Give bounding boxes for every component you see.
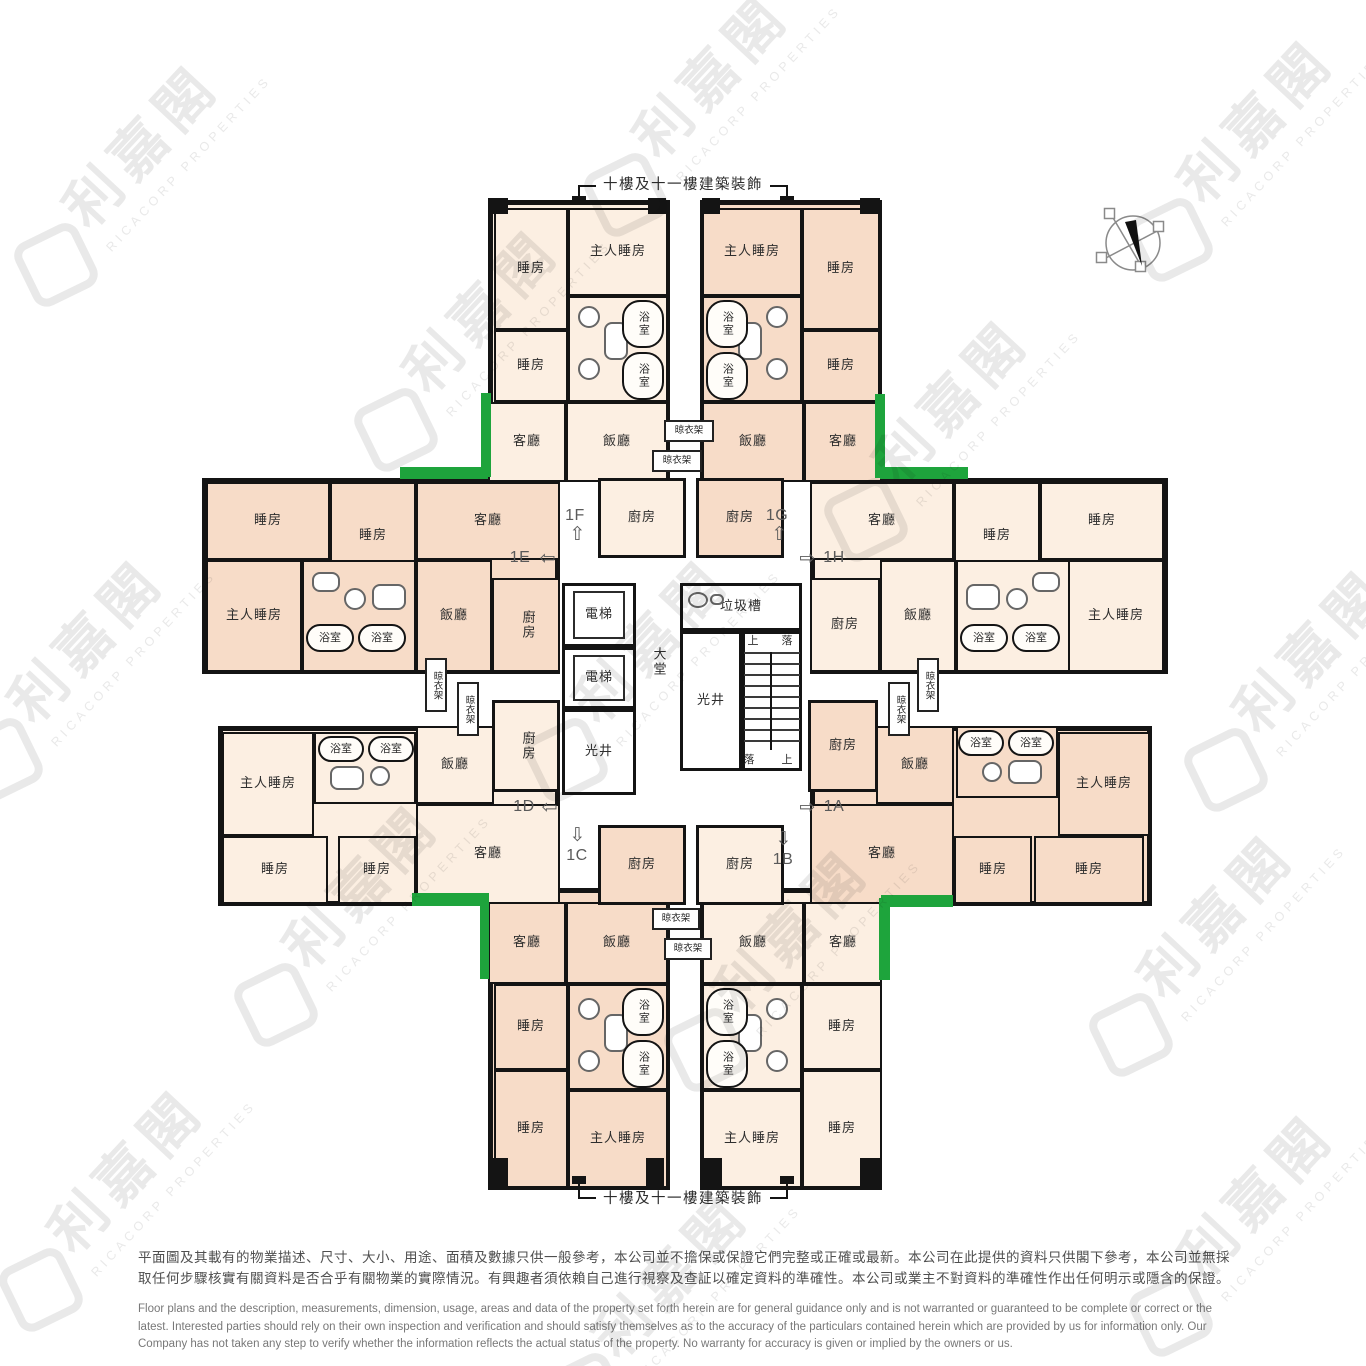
room-master-bedroom: 主人睡房 (1058, 732, 1150, 836)
bath-fixture (578, 1050, 600, 1072)
wall-pillar (488, 1158, 508, 1188)
bath-fixture (578, 998, 600, 1020)
room-kitchen: 廚房 (808, 700, 878, 792)
stair-label-up: 上 (744, 633, 762, 650)
room-bathroom-chip: 浴室 (706, 1040, 748, 1088)
wall-pillar (704, 1158, 722, 1188)
room-dining: 飯廳 (702, 902, 804, 984)
drying-rack: 晾衣架 (664, 938, 712, 960)
room-dining: 飯廳 (416, 560, 492, 672)
room-living: 客廳 (810, 804, 954, 904)
room-bathroom-chip: 浴室 (706, 300, 748, 348)
room-bathroom-chip: 浴室 (368, 736, 414, 762)
sink-fixture (710, 594, 724, 605)
room-bedroom: 睡房 (222, 836, 328, 904)
caption-tick (572, 196, 586, 204)
bath-fixture (312, 572, 340, 592)
unit-marker-1C: 1C (562, 846, 592, 866)
room-master-bedroom: 主人睡房 (568, 208, 668, 296)
drying-rack: 晾衣架 (664, 420, 714, 442)
bath-fixture (766, 358, 788, 380)
room-kitchen: 廚房 (598, 825, 686, 905)
room-living: 客廳 (804, 902, 882, 984)
room-bedroom: 睡房 (494, 208, 568, 330)
stair-divider (770, 652, 772, 750)
entry-arrow-1F: ⇧ (566, 524, 590, 546)
caption-tick (780, 196, 794, 204)
room-bedroom: 睡房 (494, 330, 568, 402)
unit-marker-1E: 1E (506, 548, 534, 568)
disclaimer-english: Floor plans and the description, measure… (138, 1301, 1232, 1354)
sink-fixture (688, 592, 708, 608)
room-bedroom: 睡房 (1040, 482, 1164, 560)
room-living: 客廳 (488, 902, 566, 984)
room-bathroom-chip: 浴室 (706, 988, 748, 1036)
unit-marker-1H: 1H (820, 548, 848, 568)
caption-tick (572, 1176, 586, 1184)
stair-label-down: 落 (740, 752, 758, 769)
decor-note-bottom: 十樓及十一樓建築裝飾 (596, 1190, 770, 1208)
room-bedroom: 睡房 (338, 836, 416, 904)
stair-label-down: 落 (778, 633, 796, 650)
wall-pillar (646, 1158, 664, 1188)
caption-line (578, 185, 596, 187)
bath-fixture (370, 766, 390, 786)
floor-plan-canvas: 睡房主人睡房浴室浴室睡房客廳飯廳主人睡房睡房浴室浴室睡房飯廳客廳睡房睡房客廳主人… (0, 0, 1366, 1366)
bath-fixture (766, 306, 788, 328)
balcony-strip (481, 393, 491, 477)
room-bathroom-chip: 浴室 (960, 624, 1008, 652)
wall-pillar (860, 198, 880, 214)
room-bedroom: 睡房 (954, 836, 1032, 904)
room-bathroom-chip: 浴室 (1012, 624, 1060, 652)
room-bedroom: 睡房 (802, 984, 882, 1070)
wall-pillar (702, 198, 720, 214)
bath-fixture (1006, 588, 1028, 610)
room-bedroom: 睡房 (494, 984, 568, 1070)
room-bedroom: 睡房 (206, 482, 330, 560)
entry-arrow-1A: ⇨ (796, 797, 820, 819)
bath-fixture (330, 766, 364, 790)
room-kitchen: 廚房 (810, 578, 880, 672)
entry-arrow-1E: ⇦ (536, 548, 560, 570)
room-master-bedroom: 主人睡房 (222, 732, 314, 836)
caption-tick (780, 1176, 794, 1184)
light-well: 光井 (680, 631, 742, 771)
elevator: 電梯 (562, 647, 636, 709)
wall-pillar (488, 198, 508, 214)
unit-marker-1D: 1D (510, 797, 538, 817)
elevator: 電梯 (562, 583, 636, 647)
room-dining: 飯廳 (876, 726, 954, 804)
unit-marker-1A: 1A (820, 797, 848, 817)
entry-arrow-1C: ⇩ (566, 826, 590, 846)
balcony-strip (879, 898, 890, 980)
room-bathroom-chip: 浴室 (1008, 730, 1054, 756)
room-bathroom-chip: 浴室 (318, 736, 364, 762)
stair-treads (744, 652, 800, 750)
wall-pillar (648, 198, 666, 214)
room-kitchen: 廚房 (492, 578, 560, 672)
light-well: 光井 (562, 709, 636, 795)
balcony-strip (412, 893, 488, 906)
bath-fixture (1032, 572, 1060, 592)
room-dining: 飯廳 (702, 402, 804, 482)
room-bedroom: 睡房 (1034, 836, 1144, 904)
entry-arrow-1H: ⇨ (796, 548, 820, 570)
room-kitchen: 廚房 (598, 478, 686, 558)
bath-fixture (766, 998, 788, 1020)
drying-rack: 晾衣架 (425, 658, 447, 712)
wall-pillar (860, 1158, 880, 1188)
room-bathroom-chip: 浴室 (622, 300, 664, 348)
room-bathroom-chip: 浴室 (306, 624, 354, 652)
room-bathroom-chip: 浴室 (622, 988, 664, 1036)
drying-rack: 晾衣架 (457, 682, 479, 736)
drying-rack: 晾衣架 (917, 658, 939, 712)
room-master-bedroom: 主人睡房 (702, 208, 802, 296)
stair-label-up: 上 (778, 752, 796, 769)
room-bedroom: 睡房 (802, 208, 880, 330)
room-bathroom-chip: 浴室 (622, 1040, 664, 1088)
caption-line (578, 1183, 580, 1199)
bath-fixture (372, 584, 406, 610)
balcony-strip (400, 467, 488, 479)
balcony-strip (881, 895, 953, 907)
entry-arrow-1D: ⇦ (538, 797, 562, 819)
bath-fixture (344, 588, 366, 610)
unit-marker-1B: 1B (768, 850, 798, 870)
room-bathroom-chip: 浴室 (706, 352, 748, 400)
balcony-strip (880, 467, 968, 479)
room-master-bedroom: 主人睡房 (206, 560, 302, 672)
bath-fixture (578, 306, 600, 328)
bath-fixture (766, 1050, 788, 1072)
entry-arrow-1B: ⇩ (772, 830, 796, 850)
caption-line (786, 1183, 788, 1199)
drying-rack: 晾衣架 (652, 450, 702, 472)
room-bedroom: 睡房 (802, 330, 880, 402)
caption-line (578, 1197, 596, 1199)
bath-fixture (966, 584, 1000, 610)
bath-fixture (982, 762, 1002, 782)
north-compass-icon (1085, 190, 1195, 300)
room-bathroom-chip: 浴室 (622, 352, 664, 400)
room-master-bedroom: 主人睡房 (1068, 560, 1164, 672)
room-kitchen: 廚房 (492, 700, 560, 792)
room-dining: 飯廳 (880, 560, 956, 672)
disclaimer-chinese: 平面圖及其載有的物業描述、尺寸、大小、用途、面積及數據只供一般參考，本公司並不擔… (138, 1248, 1232, 1290)
bath-fixture (1008, 760, 1042, 784)
entry-arrow-1G: ⇧ (768, 524, 792, 546)
room-living: 客廳 (488, 402, 566, 482)
room-living: 客廳 (804, 402, 882, 482)
drying-rack: 晾衣架 (888, 682, 910, 736)
room-living: 客廳 (416, 804, 560, 904)
bath-fixture (578, 358, 600, 380)
lobby-label: 大堂 (644, 634, 670, 690)
room-bathroom-chip: 浴室 (958, 730, 1004, 756)
balcony-strip (875, 394, 885, 478)
balcony-strip (480, 893, 489, 979)
room-dining: 飯廳 (416, 726, 494, 804)
room-bathroom-chip: 浴室 (358, 624, 406, 652)
drying-rack: 晾衣架 (652, 908, 700, 930)
disclaimer-block: 平面圖及其載有的物業描述、尺寸、大小、用途、面積及數據只供一般參考，本公司並不擔… (138, 1248, 1232, 1354)
decor-note-top: 十樓及十一樓建築裝飾 (596, 176, 770, 194)
